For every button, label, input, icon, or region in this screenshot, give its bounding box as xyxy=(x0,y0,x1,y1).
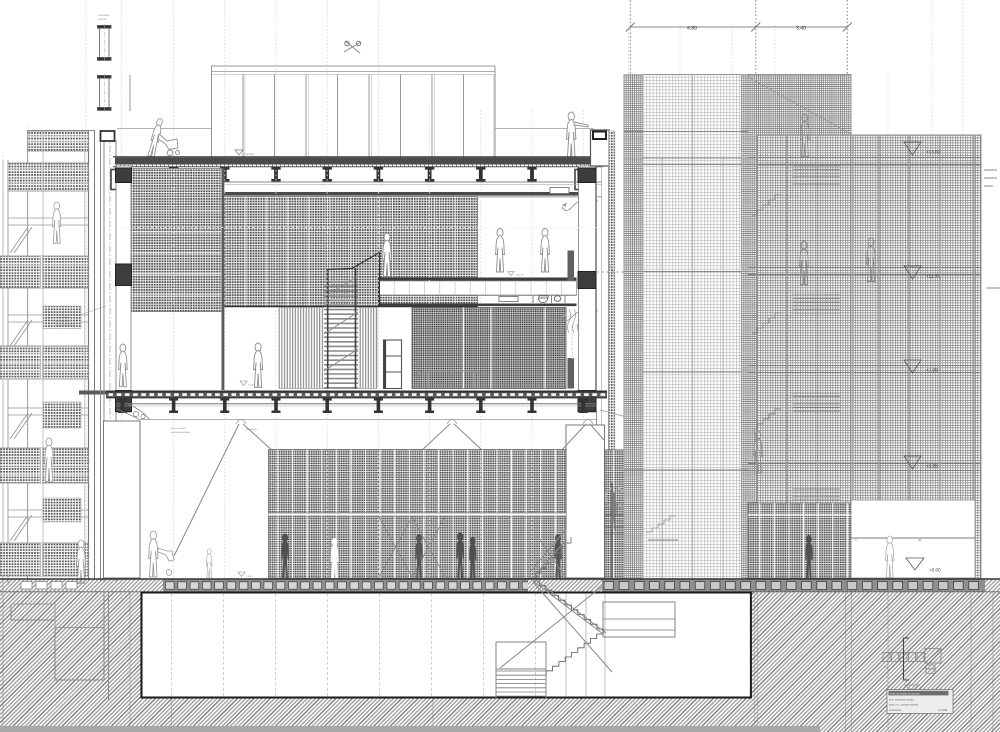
svg-text:xxx. xxxxxxxx xxxxx: xxx. xxxxxxxx xxxxx xyxy=(889,698,914,702)
svg-text:4.80: 4.80 xyxy=(687,26,697,32)
svg-text:xxxxxx: xxxxxx xyxy=(98,17,107,21)
svg-text:+7,99: +7,99 xyxy=(926,368,938,373)
svg-text:xxxx xx xxxxx xx xxxxxx: xxxx xx xxxxx xx xxxxxx xyxy=(890,692,920,696)
svg-text:xxx xx xxxxxx: xxx xx xxxxxx xyxy=(171,427,186,430)
svg-text:+x,xx: +x,xx xyxy=(246,574,253,578)
svg-text:3.40: 3.40 xyxy=(796,26,806,32)
svg-text:+11,45: +11,45 xyxy=(926,274,940,279)
svg-text:xxxxxxxxxx: xxxxxxxxxx xyxy=(56,316,70,319)
svg-text:xxx xx: xxx xx xyxy=(516,274,524,277)
svg-text:+0,00: +0,00 xyxy=(929,568,941,573)
svg-text:x 1:500: x 1:500 xyxy=(938,708,948,712)
svg-text:xxxxxxxxx: xxxxxxxxx xyxy=(246,428,258,431)
svg-text:+14,60: +14,60 xyxy=(926,150,941,155)
svg-text:xx xxxx xxx: xx xxxx xxx xyxy=(56,320,70,323)
svg-text:xxxx x.x. xxxxxx xxxxxx: xxxx x.x. xxxxxx xxxxxx xyxy=(889,702,919,706)
svg-text:xx: xx xyxy=(918,538,922,542)
svg-text:+xx,xx: +xx,xx xyxy=(245,152,254,156)
svg-text:+3,95: +3,95 xyxy=(926,464,938,469)
svg-text:+x,xx: +x,xx xyxy=(248,383,255,387)
svg-text:xxxxxxxxxxxxxxxx: xxxxxxxxxxxxxxxx xyxy=(171,431,191,434)
svg-text:xxxxxxxxx: xxxxxxxxx xyxy=(889,708,902,712)
svg-text:xxxxx xxxxxxxxx: xxxxx xxxxxxxxx xyxy=(56,324,76,327)
